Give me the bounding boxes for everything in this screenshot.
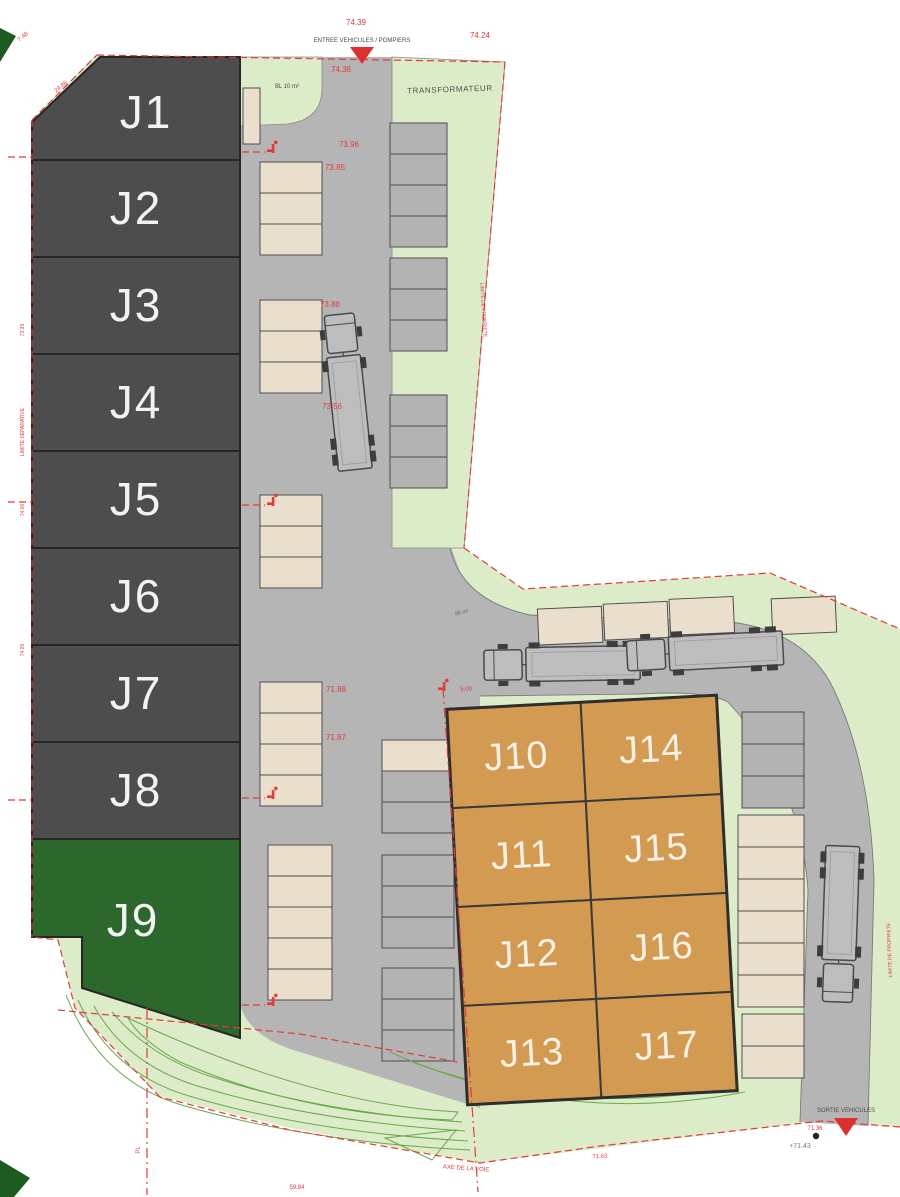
- offsite-green-wedge: [0, 1160, 30, 1197]
- parking-stall: [260, 682, 322, 713]
- parking-stall: [390, 457, 447, 488]
- plot-J2-label: J2: [110, 182, 163, 234]
- plot-J12-label: J12: [494, 932, 560, 977]
- parking-stall: [382, 886, 454, 917]
- parking-stall: [268, 876, 332, 907]
- dim-text: 7.48: [17, 31, 30, 44]
- site-plan: J1 J2 J3 J4 J5 J6 J7 J8 J9 J10 J11 J12 J…: [0, 0, 900, 1197]
- parking-stall: [243, 88, 260, 144]
- loading-dock: [603, 601, 669, 640]
- parking-stall: [742, 1046, 804, 1078]
- entry-label: ENTREE VEHICULES / POMPIERS: [314, 38, 411, 44]
- loading-dock: [771, 596, 837, 635]
- parking-stall: [390, 426, 447, 457]
- loading-dock: [537, 606, 603, 645]
- loading-dock: [669, 597, 735, 636]
- parking-stall: [742, 744, 804, 776]
- parking-stall: [260, 526, 322, 557]
- parking-stall: [390, 320, 447, 351]
- level-text: 74.39: [346, 18, 367, 27]
- parking-stall: [268, 907, 332, 938]
- parking-stall: [390, 258, 447, 289]
- parking-stall: [382, 968, 454, 999]
- level-text: 73.88: [320, 300, 341, 309]
- truck-icon: [484, 641, 641, 688]
- site-plan-page: J1 J2 J3 J4 J5 J6 J7 J8 J9 J10 J11 J12 J…: [0, 0, 900, 1197]
- parking-stall: [268, 969, 332, 1000]
- level-text: 74.24: [470, 31, 491, 40]
- parking-stall: [738, 911, 804, 943]
- plot-J5-label: J5: [110, 473, 163, 525]
- parking-stall: [260, 193, 322, 224]
- plot-J14-label: J14: [618, 727, 684, 772]
- dim-text: PL: [136, 1146, 142, 1154]
- parking-stall: [390, 395, 447, 426]
- parking-stall: [738, 943, 804, 975]
- parking-stall: [260, 362, 322, 393]
- level-text: 71.63: [592, 1153, 608, 1160]
- plot-J13-label: J13: [499, 1031, 565, 1076]
- plot-J15-label: J15: [623, 826, 689, 871]
- parking-stall: [390, 123, 447, 154]
- level-text: 71.36: [807, 1126, 823, 1132]
- level-text: 73.85: [325, 163, 346, 172]
- level-text: 73.96: [339, 140, 360, 149]
- plot-J9-label: J9: [107, 894, 160, 946]
- parking-stall: [742, 712, 804, 744]
- plot-J11-label: J11: [490, 833, 554, 878]
- bin-store-label: BL 10 m²: [275, 84, 299, 90]
- parking-stall: [382, 1030, 454, 1061]
- plots-grid: J10 J11 J12 J13 J14 J15 J16 J17: [447, 695, 737, 1105]
- plot-J17-label: J17: [634, 1024, 700, 1069]
- parking-stall: [382, 855, 454, 886]
- plot-J6-label: J6: [110, 570, 163, 622]
- plot-J4-label: J4: [110, 376, 163, 428]
- exit-arrow-icon: [834, 1118, 858, 1136]
- parking-stall: [738, 879, 804, 911]
- dim-text: 5.00: [460, 687, 472, 693]
- level-text: 71.87: [326, 733, 347, 742]
- parking-stall: [382, 802, 454, 833]
- parking-stall: [268, 938, 332, 969]
- parking-stall: [742, 1014, 804, 1046]
- parking-stall: [390, 216, 447, 247]
- plot-J16-label: J16: [628, 925, 694, 970]
- parking-stall: [260, 557, 322, 588]
- parking-stall: [260, 495, 322, 526]
- parking-stall: [382, 771, 454, 802]
- plot-J1-label: J1: [120, 86, 173, 138]
- parking-stall: [260, 162, 322, 193]
- parking-stall: [382, 917, 454, 948]
- parking-stall: [742, 776, 804, 808]
- parking-stall: [260, 744, 322, 775]
- dim-text: 74.00: [20, 504, 26, 517]
- parking-stall: [268, 845, 332, 876]
- parking-stall: [738, 975, 804, 1007]
- benchmark-icon: [813, 1133, 819, 1139]
- exit-label: SORTIE VEHICULES: [817, 1108, 875, 1114]
- dim-text: 73.35: [20, 324, 26, 337]
- level-text: +71.43: [789, 1143, 811, 1150]
- parking-stall: [738, 815, 804, 847]
- plot-J3-label: J3: [110, 279, 163, 331]
- parking-stall: [390, 154, 447, 185]
- plot-J10-label: J10: [483, 734, 549, 779]
- parking-stall: [260, 331, 322, 362]
- parking-stall: [260, 775, 322, 806]
- level-text: 73.56: [322, 402, 343, 411]
- plot-J7-label: J7: [110, 667, 163, 719]
- parking-stall: [738, 847, 804, 879]
- plot-J8-label: J8: [110, 764, 163, 816]
- parking-stall: [260, 224, 322, 255]
- parking-stall: [260, 300, 322, 331]
- dim-text: 74.05: [20, 644, 26, 657]
- parking-stall: [382, 740, 454, 771]
- level-text: 59.84: [289, 1185, 305, 1191]
- level-text: 71.88: [326, 685, 347, 694]
- truck-icon: [815, 845, 864, 1002]
- parking-stall: [260, 713, 322, 744]
- parking-stall: [390, 289, 447, 320]
- offsite-green-wedge: [0, 28, 16, 62]
- limit-label: LIMITE SEPARATIVE: [20, 407, 26, 456]
- plots-left-column: J1 J2 J3 J4 J5 J6 J7 J8: [32, 57, 240, 839]
- parking-stall: [382, 999, 454, 1030]
- axis-label: AXE DE LA VOIE: [443, 1164, 490, 1173]
- parking-stall: [390, 185, 447, 216]
- level-text: 74.38: [331, 65, 352, 74]
